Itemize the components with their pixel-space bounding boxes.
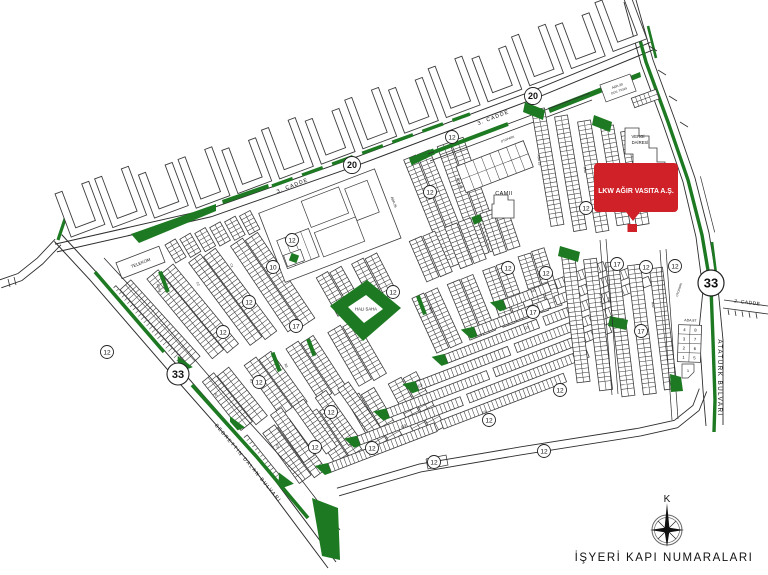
svg-text:HALI SAHA: HALI SAHA [355, 307, 377, 312]
svg-text:12: 12 [288, 237, 296, 244]
svg-text:17: 17 [529, 309, 537, 316]
svg-text:12: 12 [556, 387, 564, 394]
svg-text:ATATÜRK BULVARI: ATATÜRK BULVARI [716, 339, 723, 416]
svg-text:12: 12 [448, 134, 456, 141]
svg-text:12: 12 [245, 299, 253, 306]
svg-text:12: 12 [426, 189, 434, 196]
svg-text:12: 12 [542, 270, 550, 277]
svg-text:33: 33 [704, 276, 718, 291]
svg-text:17: 17 [613, 261, 621, 268]
svg-text:12: 12 [671, 263, 679, 270]
svg-text:12: 12 [255, 379, 263, 386]
svg-text:DAİRESİ: DAİRESİ [632, 140, 649, 145]
svg-text:12: 12 [642, 264, 650, 271]
svg-text:12: 12 [485, 417, 493, 424]
svg-text:LKW AĞIR VASITA A.Ş.: LKW AĞIR VASITA A.Ş. [598, 186, 674, 195]
svg-text:12: 12 [540, 448, 548, 455]
svg-text:12: 12 [504, 265, 512, 272]
svg-text:12: 12 [430, 459, 438, 466]
svg-text:12: 12 [327, 409, 335, 416]
svg-text:33: 33 [172, 369, 184, 381]
svg-text:B22: B22 [651, 302, 655, 308]
svg-text:İŞYERİ KAPI NUMARALARI: İŞYERİ KAPI NUMARALARI [575, 551, 754, 564]
svg-text:12: 12 [219, 329, 227, 336]
svg-text:12: 12 [368, 445, 376, 452]
svg-text:17: 17 [292, 323, 300, 330]
svg-text:17: 17 [637, 328, 645, 335]
svg-text:ADA 87: ADA 87 [684, 318, 696, 322]
svg-text:12: 12 [311, 444, 319, 451]
svg-text:12: 12 [389, 289, 397, 296]
svg-text:12: 12 [103, 349, 111, 356]
svg-text:20: 20 [347, 160, 357, 170]
svg-text:20: 20 [528, 91, 538, 101]
svg-text:12: 12 [582, 205, 590, 212]
svg-text:K: K [664, 494, 671, 505]
svg-text:10: 10 [269, 264, 277, 271]
svg-text:VERGİ: VERGİ [631, 134, 644, 139]
svg-text:B5a: B5a [583, 167, 587, 173]
